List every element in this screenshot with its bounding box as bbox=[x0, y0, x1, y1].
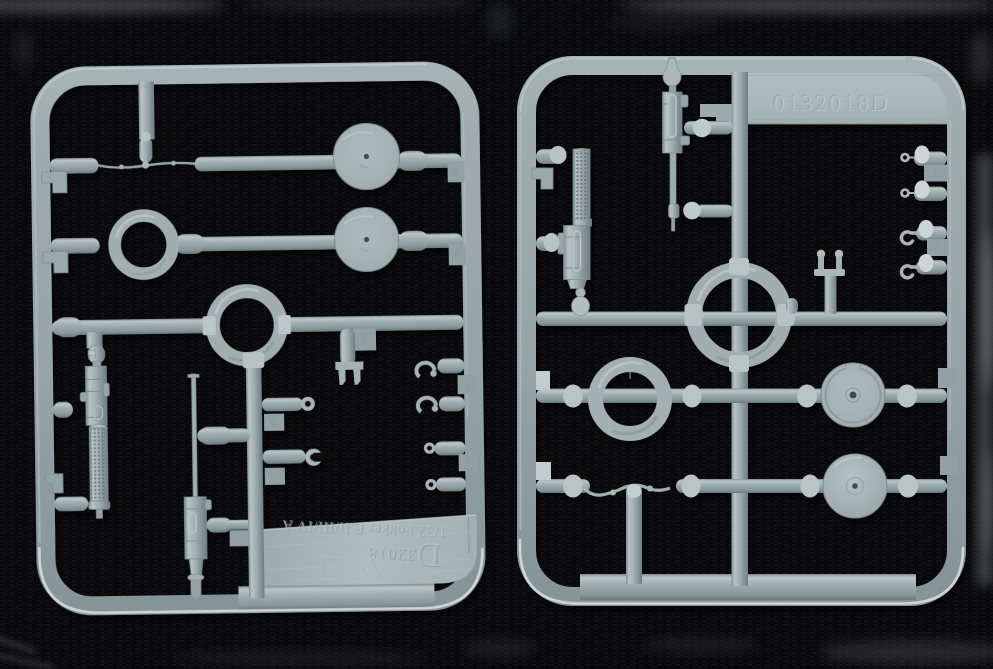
svg-text:6: 6 bbox=[454, 248, 459, 259]
svg-text:2: 2 bbox=[934, 167, 939, 178]
svg-text:1: 1 bbox=[465, 456, 470, 467]
svg-text:2: 2 bbox=[271, 416, 276, 427]
svg-text:9: 9 bbox=[453, 165, 458, 176]
svg-text:3: 3 bbox=[361, 331, 367, 343]
svg-text:2: 2 bbox=[935, 241, 940, 252]
svg-text:32018: 32018 bbox=[366, 543, 416, 564]
svg-text:D: D bbox=[415, 535, 441, 573]
svg-text:0132018D: 0132018D bbox=[774, 91, 891, 116]
svg-text:5: 5 bbox=[464, 378, 469, 389]
